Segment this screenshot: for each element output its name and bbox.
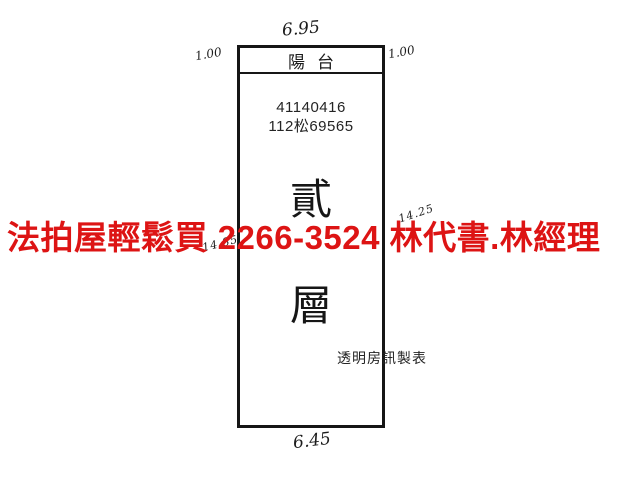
floorplan-canvas: 6.95 1.00 1.00 14.85 14.25 6.45 陽台 41140… [0, 0, 640, 480]
producer-label: 透明房訊製表 [337, 348, 427, 368]
case-number: 41140416 [240, 98, 382, 117]
dimension-right-balcony-depth: 1.00 [387, 43, 416, 61]
ad-overlay-text: 法拍屋輕鬆買 2266-3524 林代書.林經理 [7, 211, 640, 259]
case-code: 112松69565 [240, 117, 382, 136]
balcony-strip: 陽台 [240, 48, 382, 74]
dimension-top-width: 6.95 [281, 17, 320, 40]
dimension-bottom-width: 6.45 [292, 429, 332, 453]
case-id-block: 41140416 112松69565 [240, 98, 382, 136]
balcony-label: 陽台 [276, 48, 346, 73]
dimension-left-balcony-depth: 1.00 [194, 45, 223, 63]
floor-label-char-2: 層 [240, 272, 382, 333]
